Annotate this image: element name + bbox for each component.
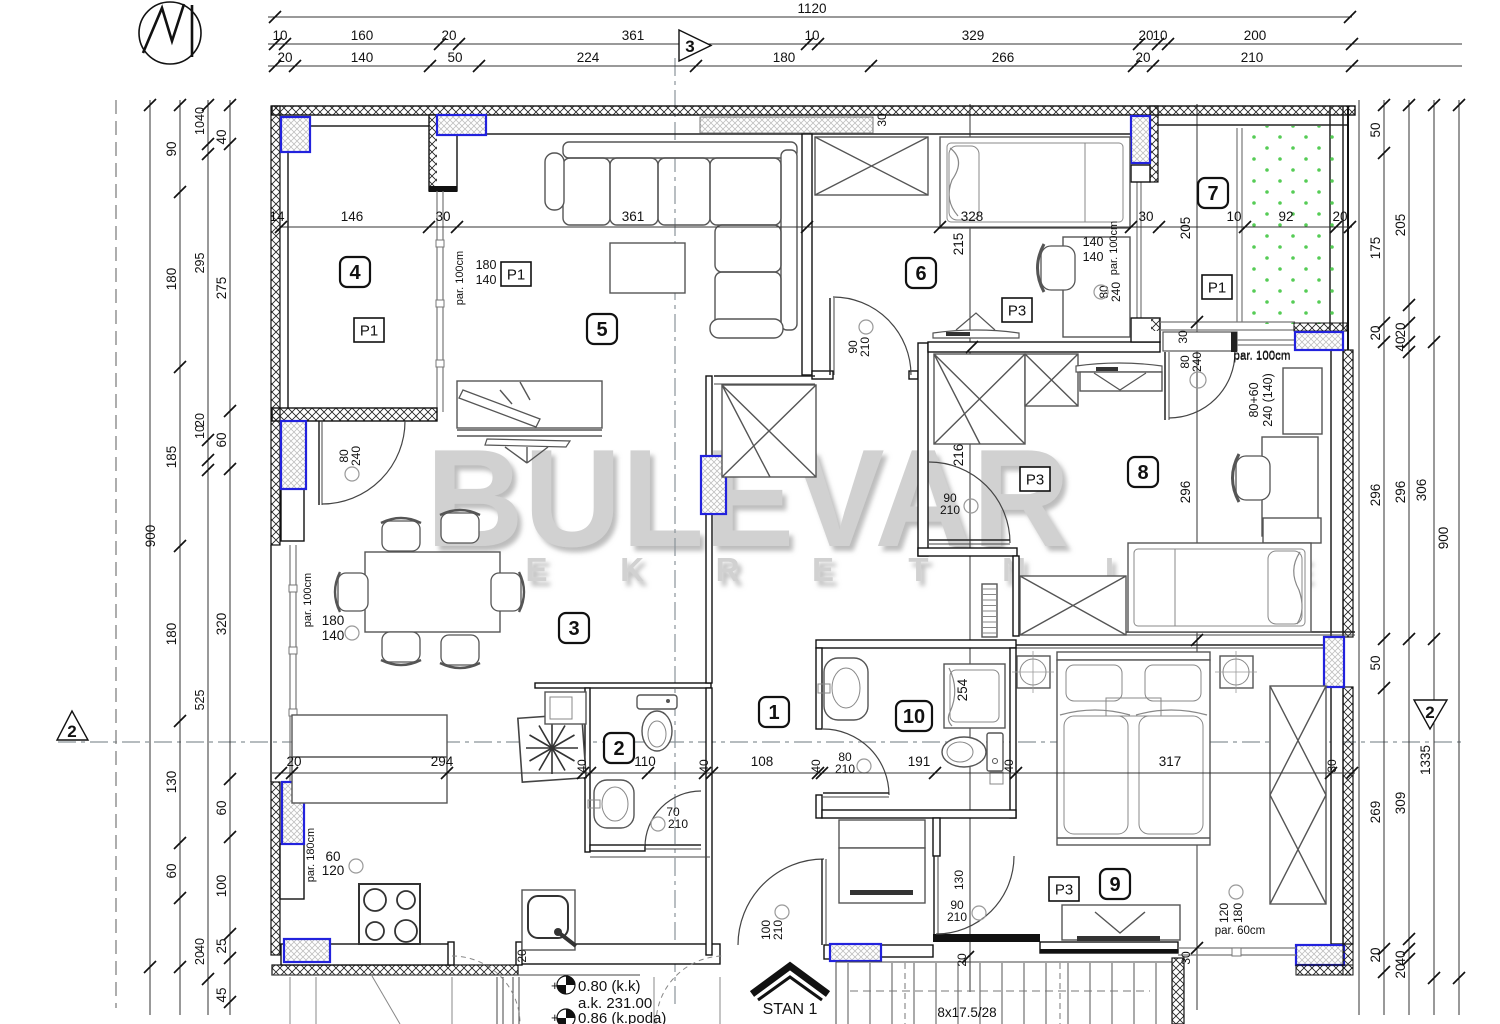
svg-text:R: R [716,551,740,588]
svg-text:P1: P1 [1208,280,1226,297]
svg-text:210: 210 [858,337,872,357]
svg-text:60: 60 [325,849,340,864]
svg-text:900: 900 [1436,527,1451,550]
svg-text:210: 210 [940,503,960,517]
svg-text:180: 180 [773,50,796,65]
svg-text:180: 180 [164,268,179,291]
svg-text:P3: P3 [1026,472,1044,489]
svg-text:P3: P3 [1055,882,1073,899]
svg-text:210: 210 [771,920,785,940]
svg-text:296: 296 [1393,481,1408,504]
svg-text:P1: P1 [360,323,378,340]
svg-text:296: 296 [1368,484,1383,507]
svg-text:20: 20 [1332,209,1347,224]
svg-text:361: 361 [622,28,645,43]
svg-text:10: 10 [903,706,925,728]
svg-text:306: 306 [1414,479,1429,502]
svg-text:40: 40 [193,938,207,952]
svg-text:8: 8 [1137,462,1148,484]
svg-text:50: 50 [1368,655,1383,670]
svg-text:10: 10 [1226,209,1241,224]
svg-text:240: 240 [1190,352,1204,372]
svg-text:80: 80 [1097,285,1111,299]
svg-text:par. 100cm: par. 100cm [1234,350,1291,362]
svg-text:60: 60 [214,800,229,815]
svg-text:210: 210 [1241,50,1264,65]
svg-text:40: 40 [1002,759,1016,773]
svg-text:+: + [551,978,559,993]
svg-text:185: 185 [164,446,179,469]
svg-text:10: 10 [1152,28,1167,43]
svg-text:20: 20 [441,28,456,43]
svg-text:130: 130 [164,771,179,794]
svg-text:90: 90 [164,141,179,156]
svg-text:2: 2 [67,722,76,741]
svg-text:0.80 (k.k): 0.80 (k.k) [578,978,641,995]
svg-text:40: 40 [1393,950,1408,965]
svg-text:140: 140 [322,628,345,643]
svg-text:STAN 1: STAN 1 [763,1001,818,1018]
svg-text:2: 2 [613,738,624,760]
svg-text:900: 900 [143,525,158,548]
svg-text:par. 100cm: par. 100cm [1108,221,1120,275]
svg-text:205: 205 [1178,217,1193,240]
svg-text:3: 3 [685,37,694,56]
svg-text:361: 361 [622,209,645,224]
svg-text:110: 110 [634,754,656,769]
svg-text:9: 9 [1109,874,1120,896]
svg-text:30: 30 [1325,759,1339,773]
svg-text:294: 294 [431,754,454,769]
svg-text:3: 3 [568,618,579,640]
svg-text:216: 216 [951,444,966,467]
svg-text:175: 175 [1368,237,1383,260]
svg-text:20: 20 [286,754,301,769]
svg-text:K: K [620,551,644,588]
svg-text:20: 20 [1138,28,1153,43]
svg-text:45: 45 [214,987,229,1002]
svg-text:92: 92 [1278,209,1293,224]
svg-text:320: 320 [214,613,229,636]
svg-text:1335: 1335 [1418,745,1433,775]
svg-text:200: 200 [1244,28,1267,43]
svg-text:140: 140 [1083,235,1104,249]
svg-text:6: 6 [915,263,926,285]
svg-text:180: 180 [164,623,179,646]
svg-text:525: 525 [193,690,207,711]
svg-text:205: 205 [1393,214,1408,237]
svg-text:par. 100cm: par. 100cm [302,573,314,627]
svg-text:par. 60cm: par. 60cm [1215,925,1266,937]
svg-text:20: 20 [1135,50,1150,65]
svg-text:100: 100 [214,875,229,898]
svg-text:40: 40 [1393,336,1408,351]
svg-text:5: 5 [596,319,607,341]
svg-text:20: 20 [277,50,292,65]
svg-text:317: 317 [1159,754,1182,769]
svg-text:20: 20 [193,413,207,427]
svg-text:210: 210 [835,762,855,776]
svg-text:295: 295 [193,253,207,274]
svg-text:296: 296 [1178,481,1193,504]
svg-text:40: 40 [193,107,207,121]
svg-text:30: 30 [1176,330,1190,344]
svg-text:4: 4 [349,262,361,284]
svg-text:25: 25 [214,938,229,953]
svg-text:210: 210 [947,910,967,924]
svg-text:215: 215 [951,233,966,256]
svg-text:P3: P3 [1008,303,1026,320]
svg-text:10: 10 [193,425,207,439]
svg-text:40: 40 [697,759,711,773]
svg-text:P1: P1 [507,267,525,284]
svg-text:40: 40 [809,759,823,773]
svg-text:309: 309 [1393,792,1408,815]
svg-text:0.86 (k.poda): 0.86 (k.poda) [578,1010,666,1024]
svg-text:50: 50 [1368,122,1383,137]
svg-text:328: 328 [961,209,984,224]
svg-text:8x17.5/28: 8x17.5/28 [937,1005,996,1020]
svg-text:par. 100cm: par. 100cm [454,251,466,305]
svg-text:240: 240 [1109,282,1123,302]
svg-text:40: 40 [214,129,229,144]
svg-text:1: 1 [768,702,779,724]
svg-text:210: 210 [668,817,688,831]
svg-text:10: 10 [193,121,207,135]
svg-text:2: 2 [1425,703,1434,722]
svg-text:10: 10 [804,28,819,43]
svg-text:140: 140 [476,273,497,287]
svg-text:240 (140): 240 (140) [1261,373,1275,427]
svg-text:160: 160 [351,28,374,43]
svg-text:146: 146 [341,209,364,224]
svg-text:140: 140 [351,50,374,65]
svg-text:269: 269 [1368,801,1383,824]
svg-text:60: 60 [214,432,229,447]
svg-text:20: 20 [1393,963,1408,978]
svg-text:120: 120 [1217,903,1231,923]
svg-text:+: + [551,1010,559,1024]
svg-text:275: 275 [214,277,229,300]
svg-text:50: 50 [447,50,462,65]
svg-text:180: 180 [1231,903,1245,923]
svg-text:140: 140 [1083,250,1104,264]
svg-text:60: 60 [164,863,179,878]
svg-text:130: 130 [952,870,966,890]
svg-text:10: 10 [272,28,287,43]
svg-text:20: 20 [1368,947,1383,962]
svg-text:14: 14 [269,209,285,224]
svg-text:191: 191 [908,754,931,769]
svg-text:20: 20 [1393,322,1408,337]
svg-text:108: 108 [751,754,774,769]
svg-text:par. 180cm: par. 180cm [305,828,317,882]
svg-text:7: 7 [1207,183,1218,205]
svg-text:20: 20 [955,953,969,967]
svg-text:30: 30 [875,113,889,127]
svg-text:266: 266 [992,50,1015,65]
svg-text:180: 180 [476,258,497,272]
svg-text:1120: 1120 [797,1,826,16]
svg-text:180: 180 [322,613,345,628]
svg-text:E: E [812,551,834,588]
svg-text:329: 329 [962,28,985,43]
svg-text:224: 224 [577,50,600,65]
svg-text:E: E [525,551,547,588]
svg-text:80+60: 80+60 [1247,382,1261,417]
svg-text:254: 254 [955,678,970,701]
svg-text:30: 30 [435,209,450,224]
svg-text:20: 20 [193,951,207,965]
svg-text:40: 40 [575,759,589,773]
svg-text:20: 20 [515,949,529,963]
svg-text:120: 120 [322,863,345,878]
svg-text:240: 240 [349,446,363,466]
svg-text:20: 20 [1368,325,1383,340]
svg-text:30: 30 [1138,209,1153,224]
